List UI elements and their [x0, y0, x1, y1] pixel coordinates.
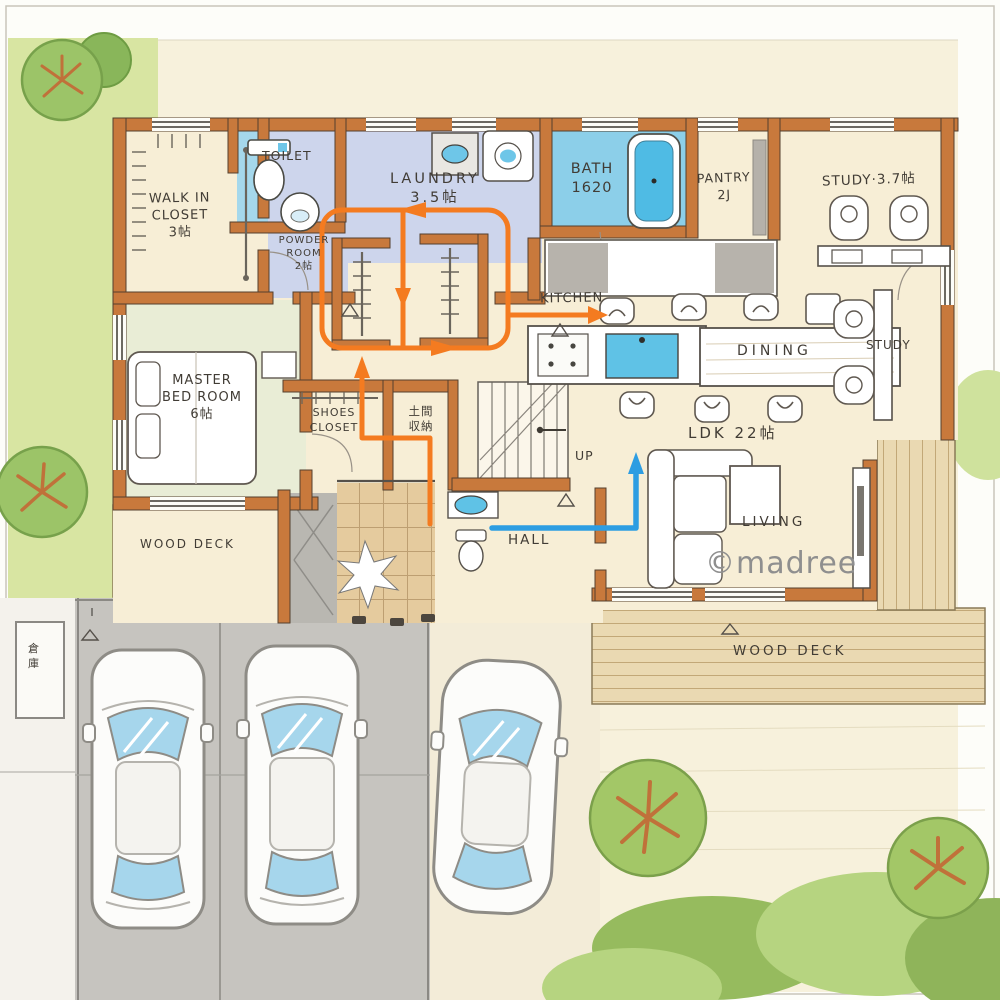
label-bath: BATH 1620	[548, 160, 636, 198]
car-3	[423, 658, 572, 917]
label-kitchen: KITCHEN	[540, 289, 604, 307]
floorplan-drawing	[0, 0, 1000, 1000]
label-up: UP	[575, 448, 594, 465]
label-ldk: LDK 22帖	[688, 424, 778, 444]
tree-bottom-1	[590, 760, 706, 876]
kitchen-back-counter	[545, 240, 777, 296]
label-study-top: STUDY·3.7帖	[822, 170, 916, 191]
label-storage-shed: 倉庫	[24, 642, 44, 671]
stairs	[478, 382, 568, 480]
label-laundry: LAUNDRY 3.5帖	[355, 170, 515, 208]
powder-basin	[281, 193, 319, 231]
label-doma-storage: 土間 収納	[400, 404, 442, 434]
label-shoes-closet: SHOES CLOSET	[296, 406, 372, 435]
label-powder-room: POWDER ROOM 2帖	[264, 234, 344, 274]
tree-bottom-2	[888, 818, 988, 918]
label-pantry: PANTRY 2J	[679, 168, 768, 204]
laundry-vanity	[432, 133, 478, 175]
label-master-bedroom: MASTER BED ROOM 6帖	[146, 372, 258, 423]
label-study-right: STUDY	[866, 338, 911, 354]
label-hall: HALL	[508, 532, 550, 550]
car-1	[83, 650, 213, 928]
kitchen-island	[528, 326, 706, 384]
floorplan-page: WALK IN CLOSET 3帖 TOILET POWDER ROOM 2帖 …	[0, 0, 1000, 1000]
label-wood-deck-bottom: WOOD DECK	[733, 643, 847, 661]
label-dining: DINING	[737, 342, 812, 360]
tree-left	[0, 447, 87, 537]
car-2	[237, 646, 367, 924]
watermark: ©madree	[705, 546, 857, 581]
label-toilet: TOILET	[262, 148, 312, 165]
label-living: LIVING	[742, 514, 805, 532]
label-wood-deck-left: WOOD DECK	[140, 537, 235, 553]
label-walk-in-closet: WALK IN CLOSET 3帖	[130, 189, 231, 242]
